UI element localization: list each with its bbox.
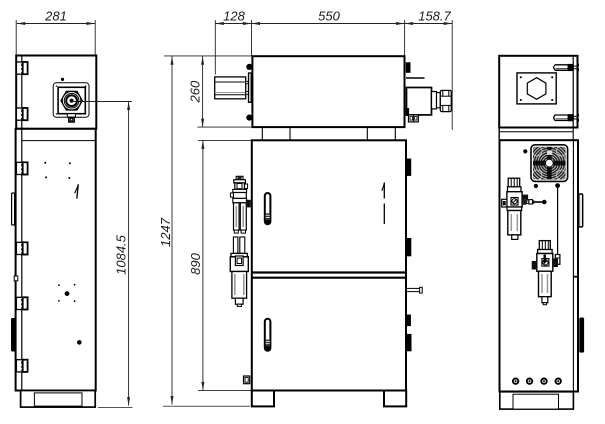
svg-text:1084.5: 1084.5 [114,234,129,275]
svg-text:158.7: 158.7 [418,9,451,24]
svg-text:1247: 1247 [158,217,173,247]
svg-text:281: 281 [44,9,67,24]
svg-text:128: 128 [223,9,245,24]
svg-text:890: 890 [188,252,203,274]
svg-text:550: 550 [318,9,340,24]
svg-text:260: 260 [187,80,202,103]
